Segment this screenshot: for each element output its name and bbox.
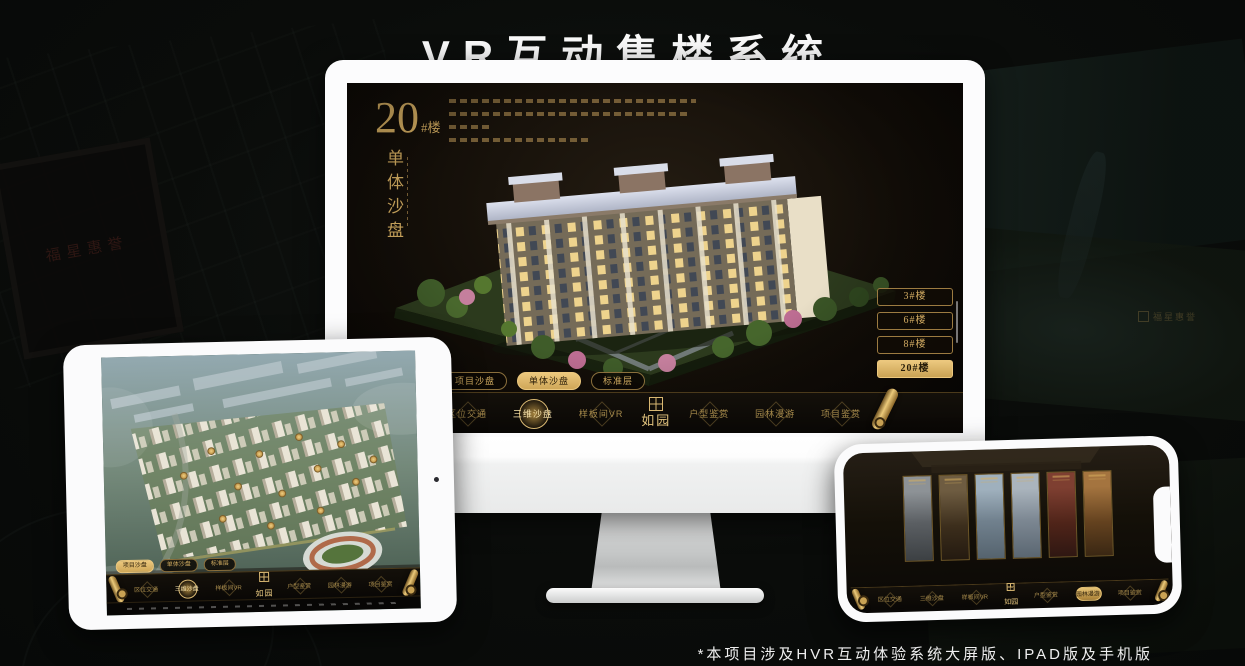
tab-project-sandbox[interactable]: 项目沙盘 xyxy=(116,559,154,573)
gallery-panel[interactable] xyxy=(974,473,1005,560)
gallery-panel[interactable] xyxy=(938,474,969,561)
brand-logo[interactable]: 如园 xyxy=(1004,582,1019,607)
floor-button-6[interactable]: 6#楼 xyxy=(877,312,953,330)
phone-nav-bar: 区位交通 三维沙盘 样板间VR 如园 户型鉴赏 园林漫游 项目鉴赏 xyxy=(851,579,1170,611)
floor-selector: 3#楼 6#楼 8#楼 20#楼 xyxy=(877,288,953,378)
tab-project-sandbox[interactable]: 项目沙盘 xyxy=(443,372,507,390)
tab-unit-sandbox[interactable]: 单体沙盘 xyxy=(517,372,581,390)
tab-standard-floor[interactable]: 标准层 xyxy=(204,558,236,572)
scroll-menu-icon[interactable] xyxy=(107,575,125,604)
phone-device: 区位交通 三维沙盘 样板间VR 如园 户型鉴赏 园林漫游 项目鉴赏 xyxy=(834,435,1183,623)
nav-item-floorplan[interactable]: 户型鉴赏 xyxy=(1032,588,1060,600)
floor-button-20[interactable]: 20#楼 xyxy=(877,360,953,378)
scroll-menu-icon[interactable] xyxy=(401,568,419,597)
phone-screen: 区位交通 三维沙盘 样板间VR 如园 户型鉴赏 园林漫游 项目鉴赏 xyxy=(843,444,1173,613)
tablet-screen: 项目沙盘 单体沙盘 标准层 区位交通 三维沙盘 样板间VR 如园 户型鉴赏 园林… xyxy=(101,350,421,615)
brand-text: 福星惠誉 xyxy=(1153,310,1197,323)
poster-canvas: 福星惠誉 福星惠誉 VR互动售楼系统 20#楼 单体沙盘 xyxy=(0,0,1245,666)
floor-button-8[interactable]: 8#楼 xyxy=(877,336,953,354)
scroll-menu-icon[interactable] xyxy=(870,387,900,432)
background-brand-logo: 福星惠誉 xyxy=(1138,310,1197,323)
tablet-sub-tabs: 项目沙盘 单体沙盘 标准层 xyxy=(116,558,236,574)
nav-item-floorplan[interactable]: 户型鉴赏 xyxy=(681,403,737,424)
gallery-panels xyxy=(843,468,1171,563)
nav-item-garden-tour[interactable]: 园林漫游 xyxy=(325,577,355,591)
monitor-stand-base xyxy=(546,588,764,603)
seal-icon xyxy=(1007,582,1015,590)
seal-icon xyxy=(259,572,269,582)
brand-logo[interactable]: 如园 xyxy=(641,397,671,429)
gallery-panel[interactable] xyxy=(1010,472,1041,559)
nav-item-floorplan[interactable]: 户型鉴赏 xyxy=(284,578,314,592)
brand-logo-label: 如园 xyxy=(1004,597,1018,605)
plaque-text: 福星惠誉 xyxy=(44,231,130,266)
nav-item-showroom-vr[interactable]: 样板间VR xyxy=(212,580,245,594)
scroll-menu-icon[interactable] xyxy=(851,588,866,611)
brand-logo-label: 如园 xyxy=(256,589,274,598)
nav-item-3d-sandbox[interactable]: 三维沙盘 xyxy=(918,591,946,603)
tablet-device: 项目沙盘 单体沙盘 标准层 区位交通 三维沙盘 样板间VR 如园 户型鉴赏 园林… xyxy=(63,337,457,631)
phone-notch xyxy=(1153,486,1172,562)
nav-item-location[interactable]: 区位交通 xyxy=(131,582,161,596)
background-photo-art xyxy=(963,227,1245,422)
seal-icon xyxy=(649,397,663,411)
scroll-menu-icon[interactable] xyxy=(1154,579,1169,602)
tablet-camera-icon xyxy=(434,476,439,481)
nav-item-showroom-vr[interactable]: 样板间VR xyxy=(960,590,991,602)
nav-item-showroom-vr[interactable]: 样板间VR xyxy=(571,403,632,424)
nav-item-project-view[interactable]: 项目鉴赏 xyxy=(1116,586,1144,598)
nav-item-project-view[interactable]: 项目鉴赏 xyxy=(365,576,395,590)
nav-item-3d-sandbox[interactable]: 三维沙盘 xyxy=(172,581,202,595)
nav-item-3d-sandbox[interactable]: 三维沙盘 xyxy=(505,403,561,424)
brand-logo-label: 如园 xyxy=(641,413,671,428)
nav-item-garden-tour[interactable]: 园林漫游 xyxy=(747,403,803,424)
footnote-text: *本项目涉及HVR互动体验系统大屏版、IPAD版及手机版 xyxy=(698,643,1153,664)
monitor-stand-neck xyxy=(591,505,721,593)
nav-item-garden-tour[interactable]: 园林漫游 xyxy=(1074,587,1102,599)
nav-item-project-view[interactable]: 项目鉴赏 xyxy=(813,403,869,424)
gallery-panel[interactable] xyxy=(902,475,933,562)
floor-button-3[interactable]: 3#楼 xyxy=(877,288,953,306)
tab-unit-sandbox[interactable]: 单体沙盘 xyxy=(160,558,198,572)
sub-tabs: 项目沙盘 单体沙盘 标准层 xyxy=(443,372,645,390)
brand-logo[interactable]: 如园 xyxy=(255,572,274,600)
gallery-panel[interactable] xyxy=(1082,470,1113,557)
tab-standard-floor[interactable]: 标准层 xyxy=(591,372,645,390)
scrollbar[interactable] xyxy=(956,301,958,343)
nav-item-location[interactable]: 区位交通 xyxy=(876,592,904,604)
brand-mark-icon xyxy=(1138,311,1149,322)
gallery-panel[interactable] xyxy=(1046,471,1077,558)
